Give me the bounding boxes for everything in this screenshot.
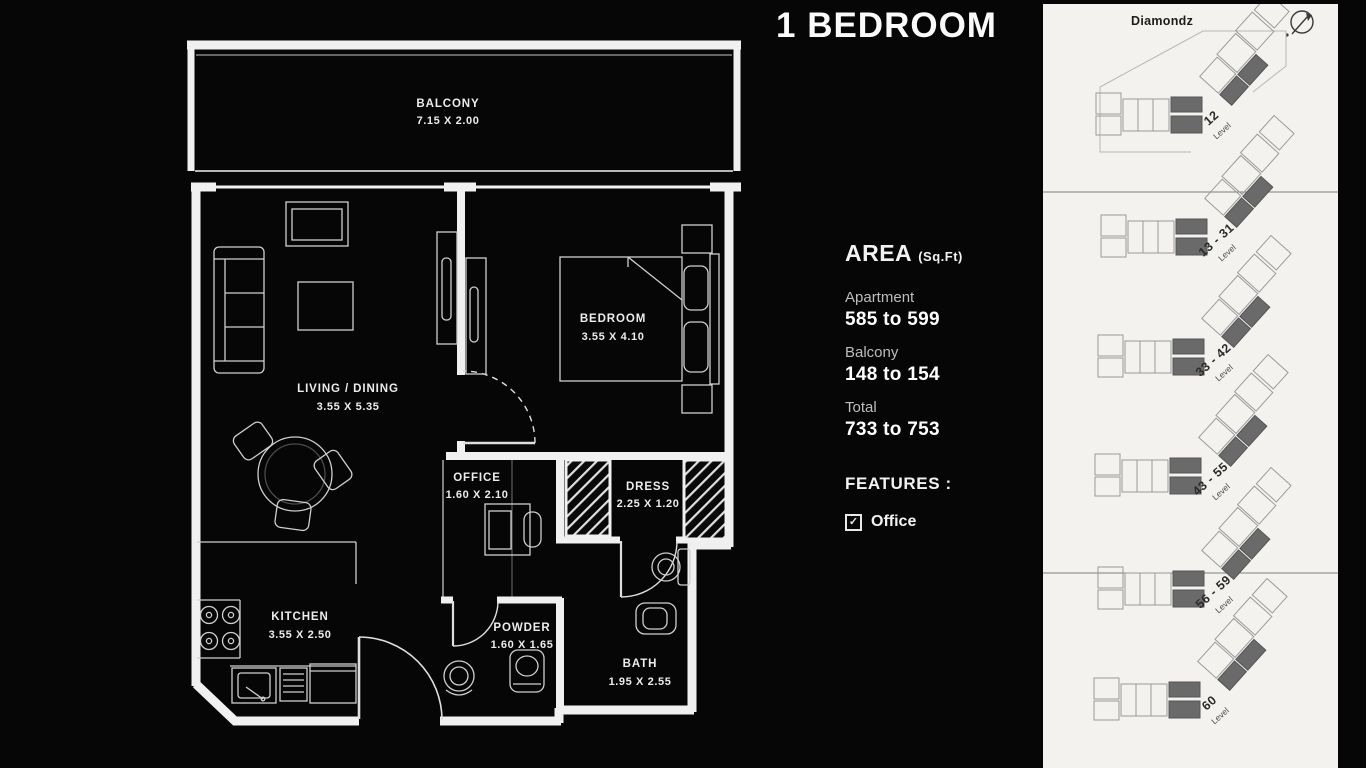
area-value: 148 to 154 — [845, 364, 963, 386]
area-heading-text: AREA — [845, 240, 911, 266]
kitchen-counter — [197, 542, 356, 666]
compass-icon — [1285, 11, 1313, 37]
shaft-hatch-left — [566, 460, 610, 536]
svg-text:60: 60 — [1199, 693, 1219, 713]
wardrobe — [466, 258, 486, 374]
tv-unit — [437, 232, 457, 344]
area-row-apartment: Apartment 585 to 599 — [845, 289, 963, 331]
feature-label: Office — [871, 513, 916, 531]
stove — [201, 607, 240, 650]
room-label-kitchen: KITCHEN — [271, 611, 328, 623]
base-cabinet — [310, 664, 356, 703]
room-dims-office: 1.60 X 2.10 — [446, 489, 509, 501]
office-checkbox: ✓ — [845, 514, 862, 531]
room-dims-dress: 2.25 X 1.20 — [617, 498, 680, 510]
room-label-office: OFFICE — [453, 472, 501, 484]
page-title: 1 BEDROOM — [776, 6, 997, 46]
sofa — [214, 247, 264, 373]
features-block: FEATURES : ✓ Office — [845, 474, 952, 531]
area-block: AREA (Sq.Ft) Apartment 585 to 599 Balcon… — [845, 240, 963, 454]
keyplan-panel: Diamondz 12 Level 13 - 31 Lev — [1043, 4, 1338, 768]
room-dims-balcony: 7.15 X 2.00 — [417, 115, 480, 127]
room-dims-powder: 1.60 X 1.65 — [491, 639, 554, 651]
area-value: 733 to 753 — [845, 419, 963, 441]
area-label: Apartment — [845, 289, 963, 306]
powder-basin — [444, 661, 474, 695]
area-row-total: Total 733 to 753 — [845, 399, 963, 441]
room-dims-bedroom: 3.55 X 4.10 — [582, 331, 645, 343]
room-label-dress: DRESS — [626, 481, 670, 493]
kitchen-sink — [232, 668, 276, 703]
room-label-balcony: BALCONY — [416, 98, 479, 110]
keyplan-drawing: Diamondz 12 Level 13 - 31 Lev — [1043, 4, 1338, 768]
svg-text:12: 12 — [1201, 108, 1221, 128]
dining-table — [231, 420, 354, 531]
bath-wc — [636, 603, 676, 634]
cabinet — [286, 202, 348, 246]
area-unit: (Sq.Ft) — [918, 249, 963, 264]
shaft-hatch-right — [684, 460, 726, 539]
powder-wc — [510, 650, 544, 692]
room-label-living: LIVING / DINING — [297, 383, 399, 395]
room-dims-living: 3.55 X 5.35 — [317, 401, 380, 413]
area-value: 585 to 599 — [845, 309, 963, 331]
room-dims-bath: 1.95 X 2.55 — [609, 676, 672, 688]
room-label-powder: POWDER — [493, 622, 550, 634]
room-label-bedroom: BEDROOM — [580, 313, 646, 325]
floorplan-page: BALCONY 7.15 X 2.00 LIVING / DINING 3.55… — [0, 0, 1366, 768]
project-name: Diamondz — [1131, 14, 1193, 28]
room-label-bath: BATH — [623, 658, 658, 670]
area-heading: AREA (Sq.Ft) — [845, 240, 963, 267]
area-row-balcony: Balcony 148 to 154 — [845, 344, 963, 386]
coffee-table — [298, 282, 353, 330]
area-label: Balcony — [845, 344, 963, 361]
room-dims-kitchen: 3.55 X 2.50 — [269, 629, 332, 641]
nightstand-bottom — [682, 385, 712, 413]
area-label: Total — [845, 399, 963, 416]
dishwasher — [280, 668, 307, 701]
feature-item-office: ✓ Office — [845, 513, 952, 531]
office-desk — [485, 504, 541, 555]
features-heading: FEATURES : — [845, 474, 952, 494]
nightstand-top — [682, 225, 712, 253]
